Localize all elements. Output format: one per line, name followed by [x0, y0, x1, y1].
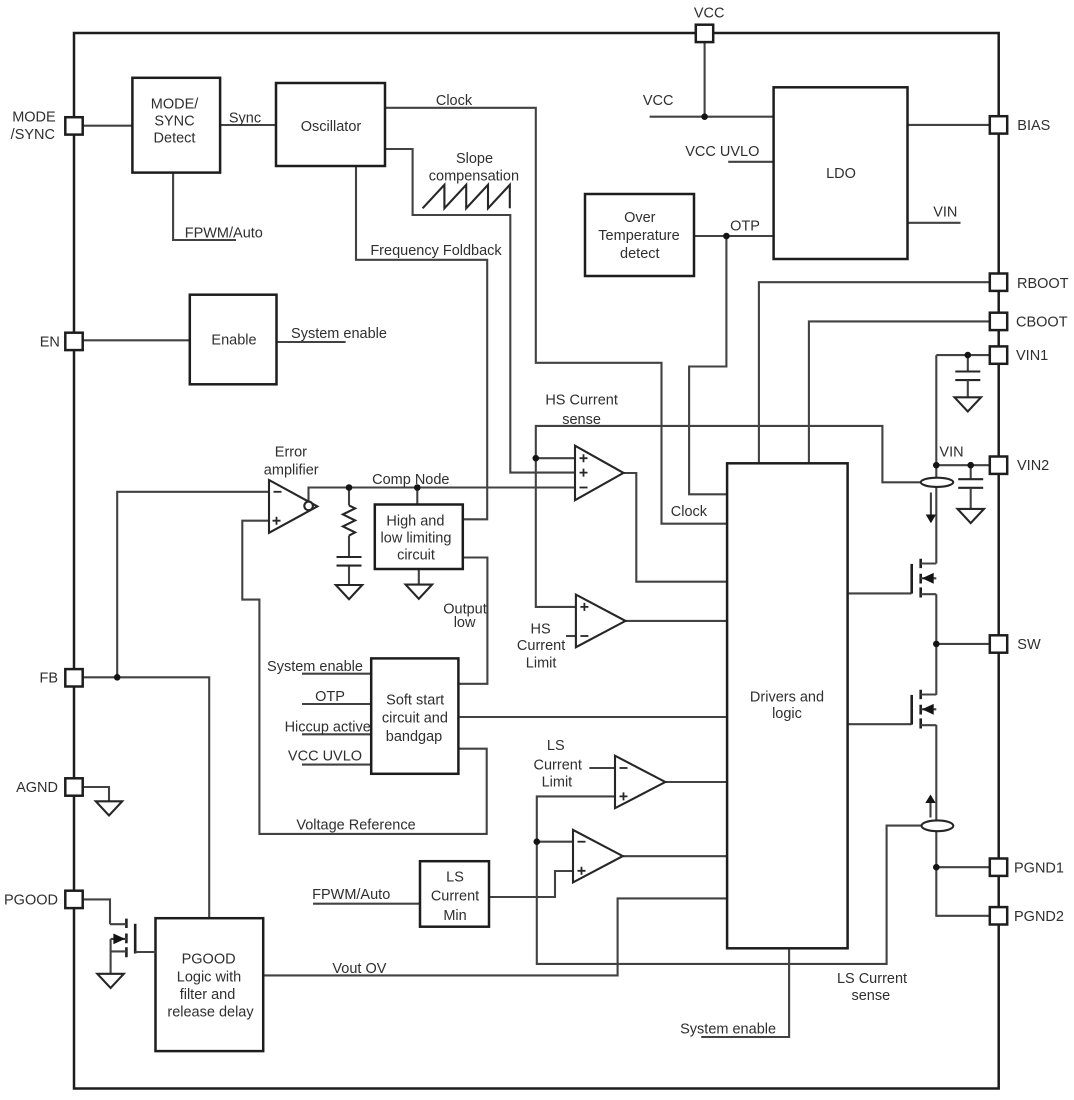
svg-text:FB: FB: [39, 671, 58, 687]
svg-text:System enable: System enable: [267, 659, 363, 675]
svg-text:LS: LS: [446, 869, 464, 885]
svg-text:Frequency Foldback: Frequency Foldback: [370, 243, 502, 259]
svg-text:Comp Node: Comp Node: [372, 472, 449, 488]
svg-text:CBOOT: CBOOT: [1016, 314, 1068, 330]
svg-text:Sync: Sync: [229, 111, 261, 127]
svg-text:Voltage Reference: Voltage Reference: [296, 818, 415, 834]
svg-text:LS Current: LS Current: [837, 971, 907, 987]
svg-text:Oscillator: Oscillator: [301, 119, 362, 135]
svg-text:Detect: Detect: [154, 131, 196, 147]
svg-text:release delay: release delay: [167, 1005, 254, 1021]
svg-text:filter and: filter and: [180, 987, 236, 1003]
svg-text:Error: Error: [275, 445, 307, 461]
svg-text:HS Current: HS Current: [545, 393, 618, 409]
svg-text:low limiting: low limiting: [381, 531, 452, 547]
svg-text:AGND: AGND: [16, 780, 58, 796]
svg-text:MODE/: MODE/: [151, 97, 200, 113]
svg-text:High and: High and: [386, 514, 444, 530]
svg-text:PGND2: PGND2: [1014, 909, 1064, 925]
svg-text:Current: Current: [517, 638, 565, 654]
svg-text:System enable: System enable: [680, 1021, 776, 1037]
svg-text:low: low: [454, 615, 476, 631]
svg-text:PGOOD: PGOOD: [182, 951, 236, 967]
svg-text:VIN1: VIN1: [1016, 348, 1048, 364]
svg-text:Clock: Clock: [671, 504, 708, 520]
svg-text:circuit and: circuit and: [382, 711, 448, 727]
svg-text:Over: Over: [624, 210, 656, 226]
svg-text:Limit: Limit: [542, 774, 573, 790]
svg-text:Min: Min: [443, 908, 466, 924]
svg-text:bandgap: bandgap: [386, 729, 442, 745]
svg-text:VIN: VIN: [939, 444, 963, 460]
svg-text:compensation: compensation: [429, 168, 519, 184]
svg-text:sense: sense: [851, 988, 890, 1004]
svg-text:BIAS: BIAS: [1017, 118, 1050, 134]
svg-text:Current: Current: [431, 889, 479, 905]
svg-text:Vout OV: Vout OV: [332, 961, 386, 977]
svg-text:Logic with: Logic with: [177, 969, 241, 985]
svg-text:logic: logic: [772, 706, 802, 722]
svg-text:Clock: Clock: [436, 93, 473, 109]
svg-text:MODE: MODE: [12, 110, 56, 126]
svg-text:/SYNC: /SYNC: [11, 127, 55, 143]
svg-text:VIN: VIN: [933, 205, 957, 221]
svg-text:SW: SW: [1017, 637, 1041, 653]
svg-text:circuit: circuit: [397, 548, 435, 564]
svg-text:Slope: Slope: [456, 151, 493, 167]
svg-text:Current: Current: [534, 758, 582, 774]
svg-text:FPWM/Auto: FPWM/Auto: [312, 887, 390, 903]
svg-text:PGOOD: PGOOD: [4, 893, 58, 909]
svg-text:Drivers and: Drivers and: [750, 689, 824, 705]
svg-text:sense: sense: [562, 412, 601, 428]
svg-text:VCC UVLO: VCC UVLO: [288, 748, 362, 764]
svg-text:HS: HS: [531, 622, 551, 638]
svg-text:LDO: LDO: [826, 166, 856, 182]
svg-text:FPWM/Auto: FPWM/Auto: [185, 226, 263, 242]
svg-text:VIN2: VIN2: [1017, 458, 1049, 474]
svg-text:Limit: Limit: [526, 656, 557, 672]
svg-text:RBOOT: RBOOT: [1017, 276, 1069, 292]
svg-text:Enable: Enable: [211, 333, 256, 349]
svg-text:VCC: VCC: [694, 5, 725, 21]
svg-text:System enable: System enable: [291, 326, 387, 342]
svg-text:Temperature: Temperature: [598, 228, 679, 244]
svg-text:VCC UVLO: VCC UVLO: [685, 144, 759, 160]
svg-text:VCC: VCC: [643, 93, 674, 109]
svg-text:detect: detect: [620, 246, 660, 262]
svg-text:SYNC: SYNC: [154, 113, 194, 129]
svg-text:Hiccup active: Hiccup active: [285, 719, 371, 735]
svg-text:Soft start: Soft start: [386, 693, 444, 709]
svg-text:PGND1: PGND1: [1014, 860, 1064, 876]
svg-text:amplifier: amplifier: [264, 463, 319, 479]
svg-text:LS: LS: [547, 738, 565, 754]
svg-text:OTP: OTP: [315, 689, 345, 705]
svg-text:EN: EN: [40, 335, 60, 351]
svg-text:OTP: OTP: [730, 219, 760, 235]
